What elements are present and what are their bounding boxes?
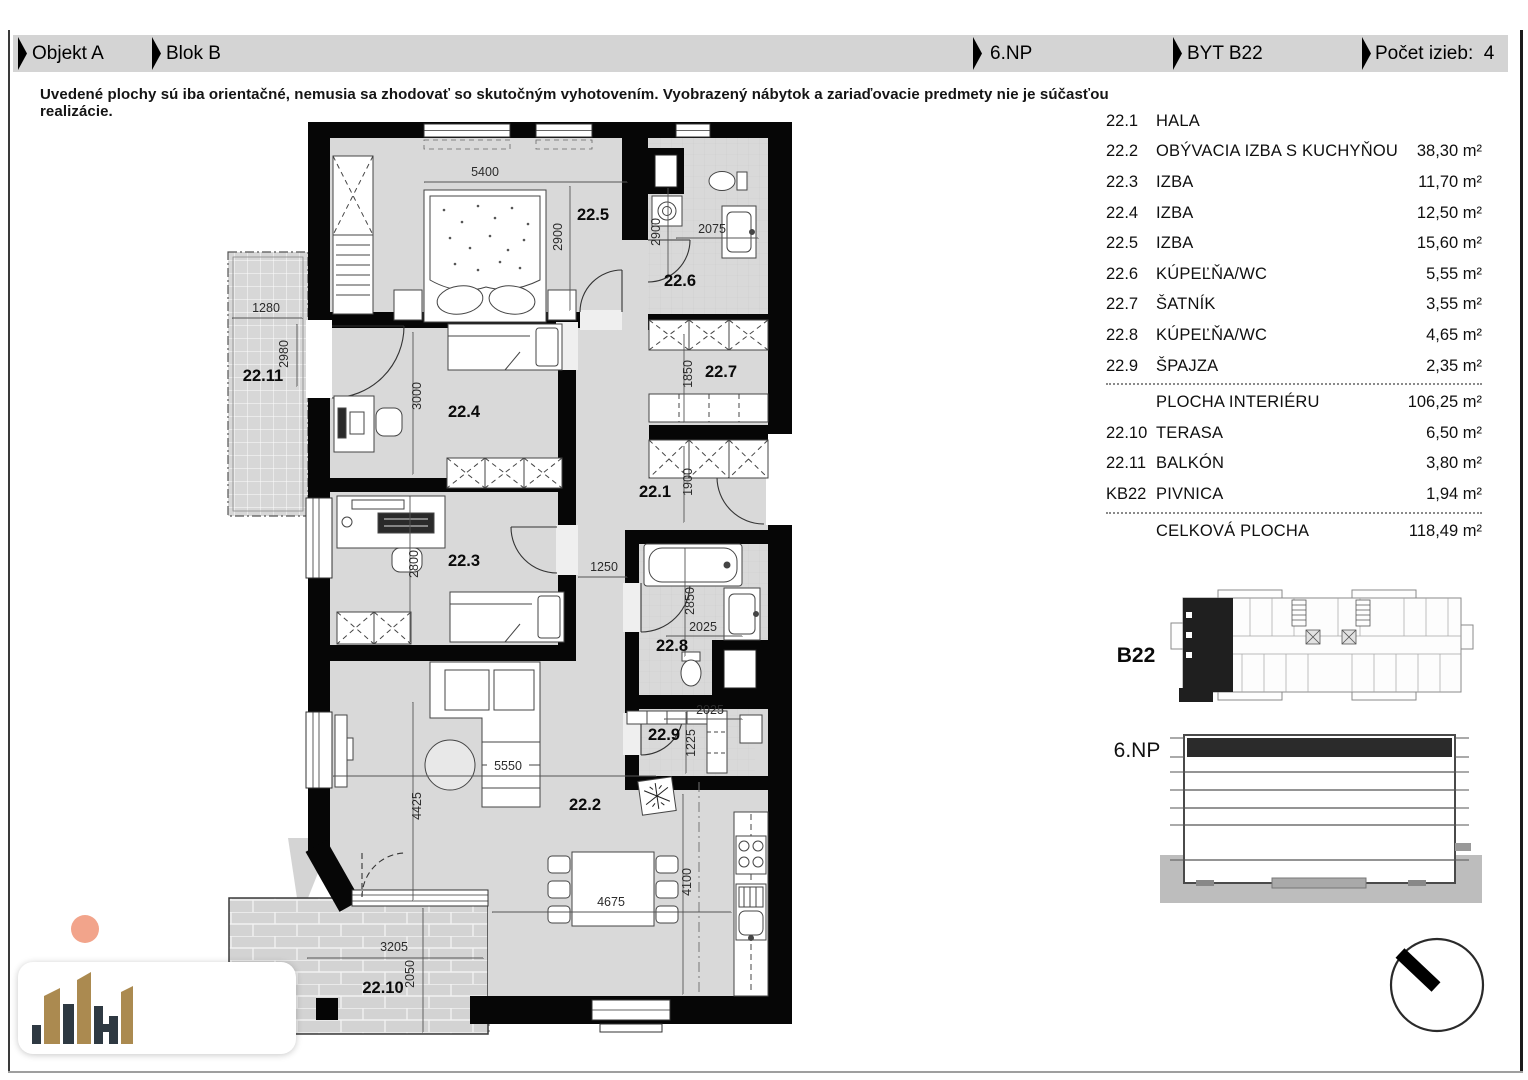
door-openings	[556, 310, 641, 755]
label-22-2: 22.2	[569, 796, 601, 814]
separator-triangle-icon	[18, 37, 27, 70]
label-22-8: 22.8	[656, 637, 688, 655]
label-22-1: 22.1	[639, 483, 671, 501]
dim-izba4-h: 3000	[410, 382, 424, 410]
header-unit: BYT B22	[1187, 35, 1263, 72]
separator-triangle-icon	[152, 37, 161, 70]
label-22-6: 22.6	[664, 272, 696, 290]
living-room-22-2-furniture	[335, 662, 678, 926]
logo-card: REZIDENCIA HLINY	[18, 962, 296, 1054]
dim-spajza-w: 2025	[696, 703, 724, 717]
dim-izba3-h: 2800	[407, 550, 421, 578]
header-floor: 6.NP	[990, 35, 1032, 72]
label-22-3: 22.3	[448, 552, 480, 570]
room-22-4-furniture	[334, 324, 562, 488]
dim-kupelna6-h: 2900	[649, 218, 663, 246]
minimap-unit-label: B22	[1117, 644, 1156, 667]
wardrobe-22-7	[649, 320, 768, 422]
dim-balkon-w: 1280	[252, 301, 280, 315]
legend-row: 22.1HALA	[1106, 106, 1482, 137]
label-22-11: 22.11	[243, 367, 283, 385]
legend-row: 22.4IZBA12,50 m²	[1106, 198, 1482, 229]
separator-triangle-icon	[973, 37, 982, 70]
separator-triangle-icon	[1173, 37, 1182, 70]
room-legend: 22.1HALA 22.2OBÝVACIA IZBA S KUCHYŇOU38,…	[1106, 106, 1482, 546]
unit-b22-highlight	[1179, 598, 1233, 702]
highlighted-floor-band	[1187, 738, 1452, 757]
page-border-bottom	[8, 1071, 1523, 1073]
dim-kupelna6-w: 2075	[698, 222, 726, 236]
legend-row: 22.2OBÝVACIA IZBA S KUCHYŇOU38,30 m²	[1106, 137, 1482, 168]
dim-hala-h: 1900	[681, 468, 695, 496]
fridge-snowflake-icon	[638, 777, 676, 815]
label-22-7: 22.7	[705, 363, 737, 381]
disclaimer-text: Uvedené plochy sú iba orientačné, nemusi…	[40, 86, 1140, 120]
bathroom-22-8-fixtures	[644, 544, 760, 686]
label-22-5: 22.5	[577, 206, 609, 224]
page-border-left	[8, 30, 10, 1072]
legend-separator	[1106, 383, 1482, 385]
walls	[308, 122, 792, 1024]
legend-separator	[1106, 512, 1482, 514]
bathroom-22-6-fixtures	[652, 172, 756, 259]
balcony-22-11	[228, 252, 308, 516]
label-22-9: 22.9	[648, 726, 680, 744]
separator-triangle-icon	[1362, 37, 1371, 70]
hall-closet	[649, 440, 768, 478]
label-22-10: 22.10	[362, 979, 403, 997]
legend-row: 22.10TERASA6,50 m²	[1106, 418, 1482, 449]
kitchen-fixtures	[638, 777, 768, 996]
logo-buildings-icon	[30, 962, 140, 1054]
dimension-texts: 5400 2900 2900 2075 1280 2980 3000 1850 …	[252, 165, 726, 988]
legend-row: KB22PIVNICA1,94 m²	[1106, 479, 1482, 510]
dim-jedalen-w: 4675	[597, 895, 625, 909]
legend-row-subtotal: PLOCHA INTERIÉRU106,25 m²	[1106, 387, 1482, 418]
room-22-3-furniture	[337, 496, 564, 644]
dim-izba5-w: 5400	[471, 165, 499, 179]
legend-row: 22.11BALKÓN3,80 m²	[1106, 449, 1482, 480]
room-labels: 22.1 22.2 22.3 22.4 22.5 22.6 22.7 22.8 …	[243, 206, 737, 997]
peach-dot-decoration	[71, 915, 99, 943]
label-22-4: 22.4	[448, 403, 481, 421]
dim-terasa-w: 3205	[380, 940, 408, 954]
pantry-22-9	[627, 711, 762, 773]
elevation-floor-label: 6.NP	[1114, 739, 1161, 762]
page-border-right	[1520, 30, 1523, 1072]
legend-row: 22.8KÚPEĽŇA/WC4,65 m²	[1106, 320, 1482, 351]
apartment-floor	[330, 138, 768, 996]
dim-satnik-h: 1850	[681, 360, 695, 388]
building-minimap: B22	[1117, 590, 1473, 702]
dim-spajza-h: 1225	[684, 729, 698, 757]
dim-izba5-h: 2900	[551, 223, 565, 251]
header-block: Blok B	[166, 35, 221, 72]
windows	[306, 124, 794, 1032]
floorplan-sheet: Objekt A Blok B 6.NP BYT B22 Počet izieb…	[0, 0, 1528, 1080]
watermark-fragment	[288, 838, 332, 918]
legend-row: 22.5IZBA15,60 m²	[1106, 228, 1482, 259]
dimension-lines	[232, 182, 758, 1032]
room-22-5-furniture	[333, 156, 576, 322]
dim-obyvacka-w: 5550	[494, 759, 522, 773]
header-object: Objekt A	[32, 35, 104, 72]
legend-row: 22.6KÚPEĽŇA/WC5,55 m²	[1106, 259, 1482, 290]
header-room-count: Počet izieb: 4	[1375, 35, 1494, 72]
dim-kuchyna-h: 4100	[680, 868, 694, 896]
dim-kupelna8-h: 2850	[683, 587, 697, 615]
legend-row: 22.3IZBA11,70 m²	[1106, 167, 1482, 198]
dim-terasa-h: 2050	[403, 960, 417, 988]
header-bar: Objekt A Blok B 6.NP BYT B22 Počet izieb…	[13, 35, 1508, 72]
door-swings	[332, 240, 764, 897]
legend-row: 22.9ŠPAJZA2,35 m²	[1106, 351, 1482, 382]
legend-row: 22.7ŠATNÍK3,55 m²	[1106, 290, 1482, 321]
ground	[1160, 855, 1482, 903]
diagonal-wall	[316, 846, 350, 906]
dim-obyvacka-h: 4425	[410, 792, 424, 820]
dim-hala-w: 1250	[590, 560, 618, 574]
dim-kupelna8-w: 2025	[689, 620, 717, 634]
floor-elevation: 6.NP	[1114, 735, 1482, 903]
floor-plan: 5400 2900 2900 2075 1280 2980 3000 1850 …	[228, 122, 794, 1036]
legend-row-total: CELKOVÁ PLOCHA118,49 m²	[1106, 516, 1482, 547]
north-arrow-icon	[1391, 939, 1483, 1031]
dim-balkon-h: 2980	[277, 340, 291, 368]
